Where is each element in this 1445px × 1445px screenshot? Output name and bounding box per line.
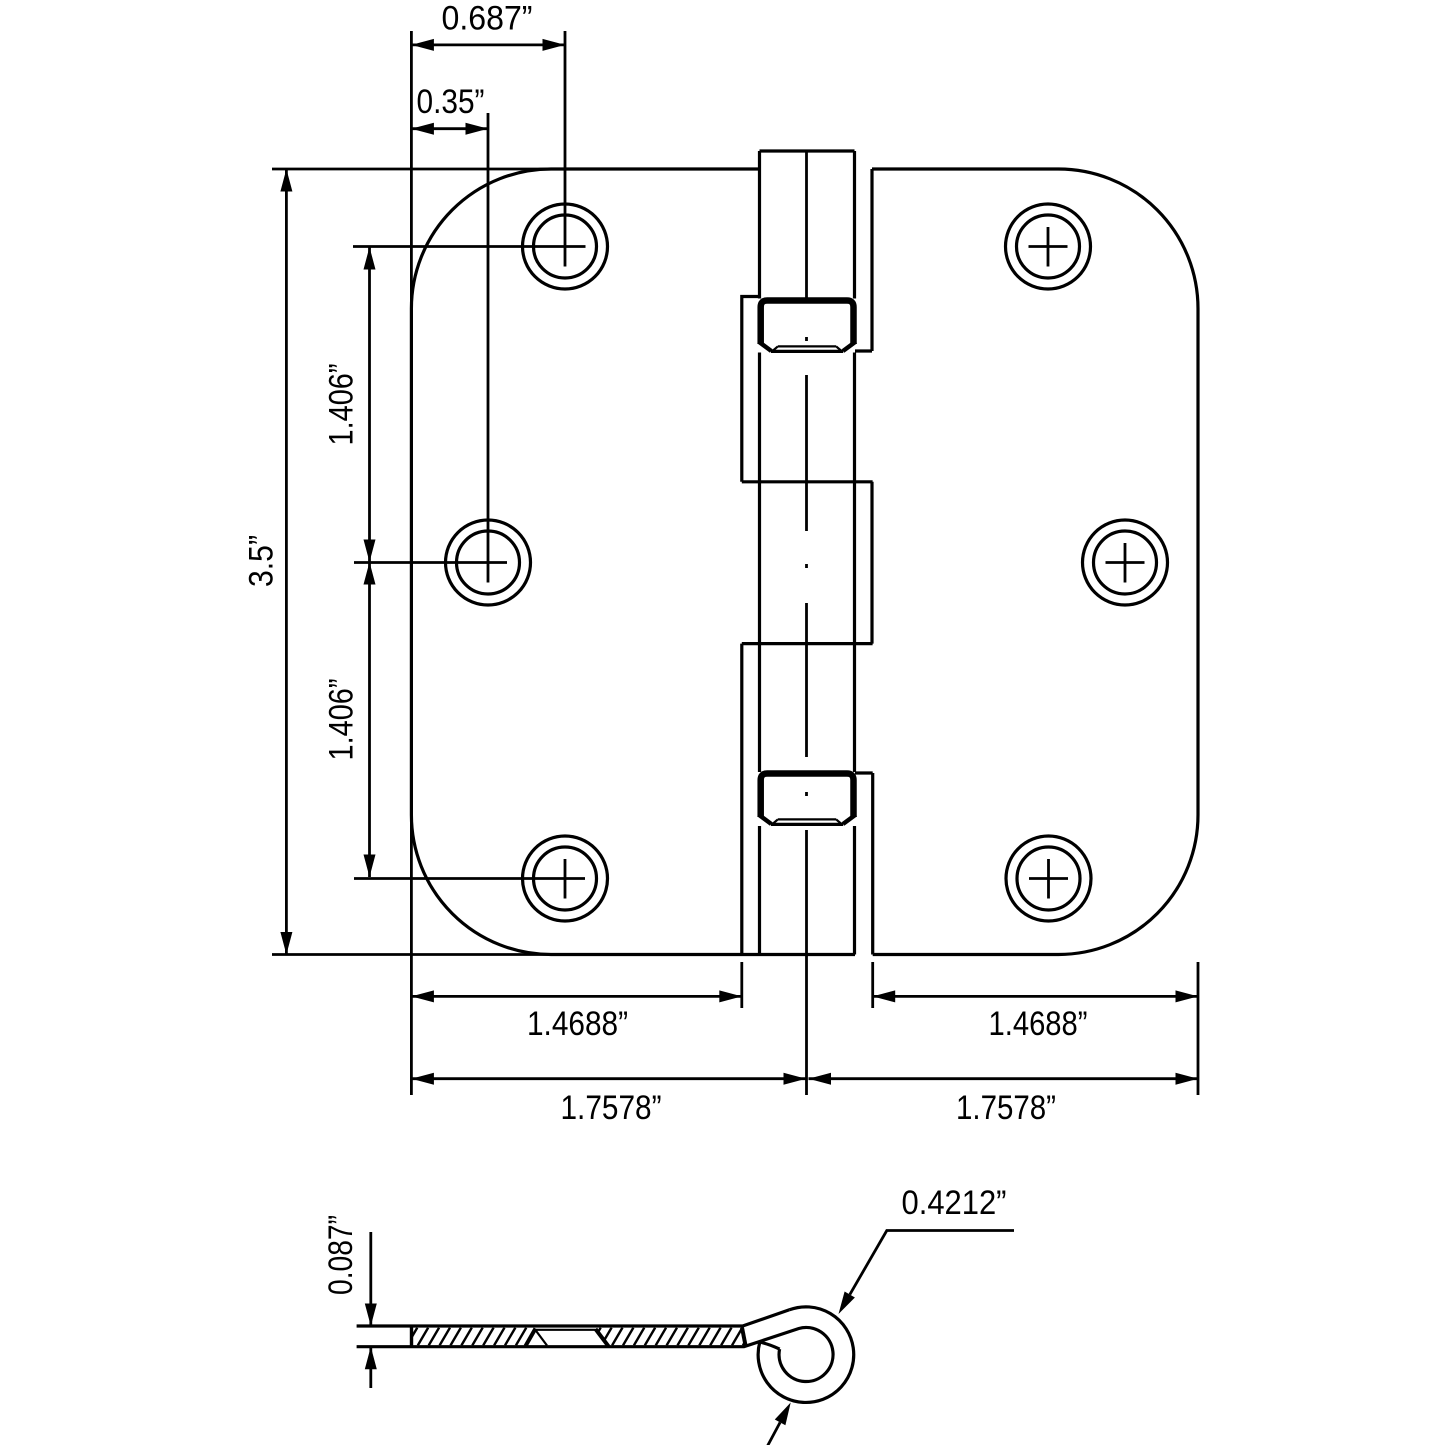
svg-text:1.406”: 1.406” [323, 679, 361, 761]
svg-text:3.5”: 3.5” [243, 535, 281, 587]
svg-text:0.35”: 0.35” [417, 83, 485, 121]
svg-text:1.406”: 1.406” [323, 364, 361, 446]
svg-text:0.087”: 0.087” [322, 1215, 360, 1295]
svg-text:1.7578”: 1.7578” [561, 1089, 662, 1127]
svg-text:0.4212”: 0.4212” [902, 1184, 1007, 1222]
svg-text:0.687”: 0.687” [442, 0, 533, 38]
svg-text:1.7578”: 1.7578” [956, 1089, 1056, 1127]
svg-text:1.4688”: 1.4688” [989, 1005, 1088, 1043]
svg-text:1.4688”: 1.4688” [527, 1005, 628, 1043]
